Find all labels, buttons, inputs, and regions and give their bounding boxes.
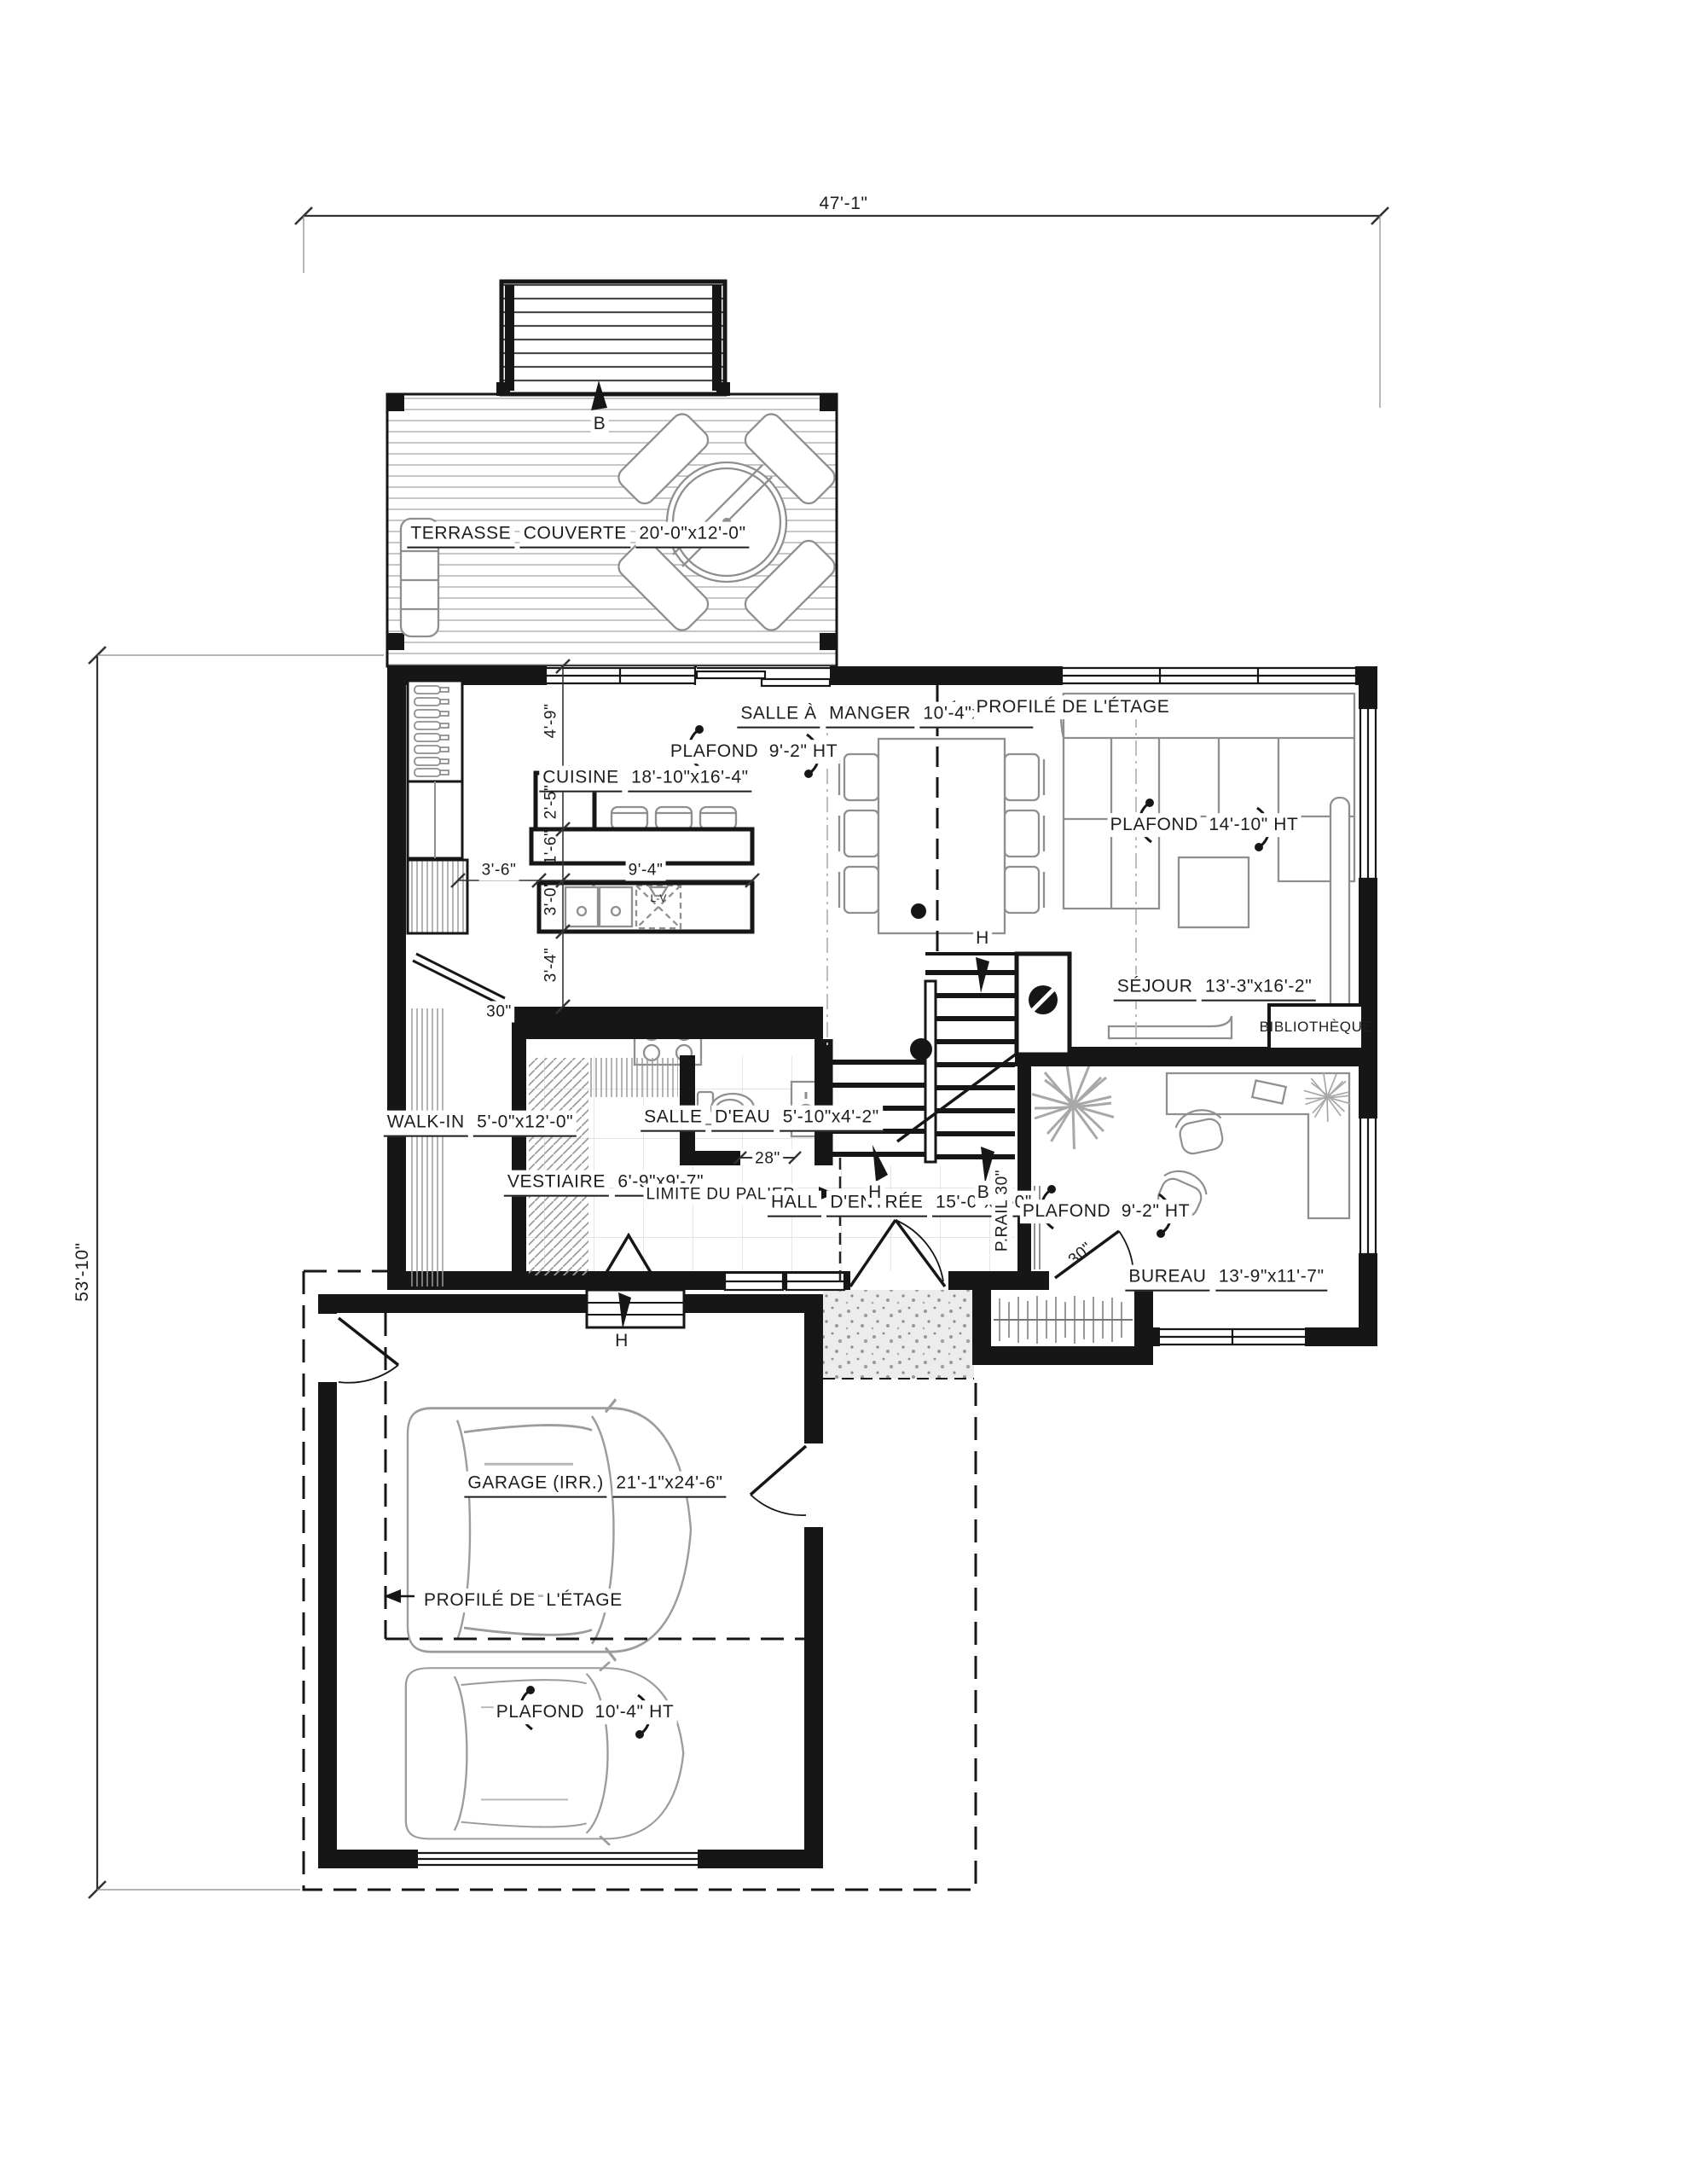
- dim-3-6: 3'-6": [479, 859, 519, 880]
- stairs-up-label: H: [973, 926, 992, 950]
- wine-rack: [408, 681, 462, 781]
- kitchen-stools: [612, 807, 736, 829]
- salle-eau-label: SALLE D'EAU 5'-10"x4'-2": [641, 1106, 883, 1132]
- cuisine-label: CUISINE 18'-10"x16'-4": [539, 766, 751, 793]
- deck-stair-direction: B: [591, 412, 609, 436]
- prail-label: P.RAIL 30": [991, 1167, 1012, 1254]
- dishwasher-label: L-V: [651, 892, 667, 906]
- plafond-bureau-label: PLAFOND 9'-2" HT: [1020, 1199, 1192, 1223]
- kitchen-island: [531, 829, 752, 863]
- dim-9-4: 9'-4": [626, 859, 666, 880]
- profile-etage-garage-label: PROFILÉ DE L'ÉTAGE: [421, 1589, 625, 1612]
- bibliotheque-label: BIBLIOTHÈQUE: [1260, 1018, 1373, 1037]
- overall-width-dim: 47'-1": [819, 192, 867, 216]
- stairs-down-label: B: [975, 1181, 993, 1205]
- overall-height-dim: 53'-10": [71, 1242, 95, 1301]
- terrasse-label: TERRASSE COUVERTE 20'-0"x12'-0": [407, 522, 749, 549]
- entry-porch: [823, 1290, 974, 1379]
- dim-28: 28": [752, 1147, 783, 1169]
- plafond-garage-label: PLAFOND 10'-4" HT: [494, 1700, 677, 1724]
- plant: [1032, 1062, 1114, 1149]
- stairs-up-label-bottom: H: [866, 1181, 884, 1205]
- dim-2-5: 2'-5": [540, 785, 561, 820]
- deck-stairs: [501, 282, 725, 394]
- coat-closet-hangers: [994, 1296, 1133, 1344]
- plafond-sejour-label: PLAFOND 14'-10" HT: [1108, 813, 1301, 837]
- dim-3-0: 3'-0": [540, 881, 561, 916]
- garage-steps-label: H: [612, 1329, 631, 1353]
- floor-plan-drawing: [0, 0, 1687, 2184]
- dim-4-9: 4'-9": [540, 704, 561, 739]
- car-1: [408, 1399, 691, 1661]
- media-console: [1109, 1016, 1232, 1038]
- walk-in-label: WALK-IN 5'-0"x12'-0": [384, 1111, 577, 1137]
- dining-table: [839, 739, 1044, 933]
- kitchen-sink: [565, 881, 632, 926]
- floor-plan-sheet: 47'-1" 53'-10" TERRASSE COUVERTE 20'-0"x…: [0, 0, 1687, 2184]
- coffee-table: [1179, 857, 1249, 927]
- fireplace: [1017, 954, 1070, 1054]
- profile-etage-annotation: PROFILÉ DE L'ÉTAGE: [974, 695, 1173, 719]
- sejour-label: SÉJOUR 13'-3"x16'-2": [1114, 975, 1316, 1002]
- car-2: [406, 1662, 683, 1845]
- bureau-label: BUREAU 13'-9"x11'-7": [1125, 1265, 1327, 1292]
- fridge: [408, 860, 467, 933]
- kitchen-door-width: 30": [484, 1001, 514, 1022]
- dim-3-4: 3'-4": [540, 948, 561, 983]
- dim-1-6: 1'-6": [540, 830, 561, 865]
- plafond-cuisine-label: PLAFOND 9'-2" HT: [668, 740, 840, 764]
- garage-label: GARAGE (IRR.) 21'-1"x24'-6": [464, 1472, 726, 1498]
